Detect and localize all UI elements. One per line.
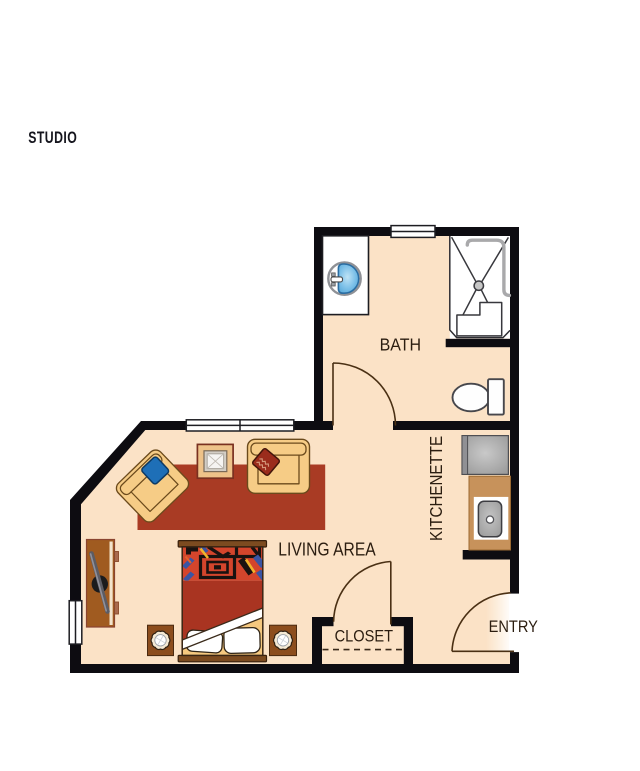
- svg-text:STUDIO: STUDIO: [28, 129, 77, 147]
- svg-text:ENTRY: ENTRY: [489, 618, 539, 636]
- svg-text:KITCHENETTE: KITCHENETTE: [427, 436, 446, 541]
- svg-text:CLOSET: CLOSET: [335, 628, 394, 646]
- svg-text:BATH: BATH: [380, 335, 421, 355]
- svg-text:LIVING AREA: LIVING AREA: [278, 539, 376, 559]
